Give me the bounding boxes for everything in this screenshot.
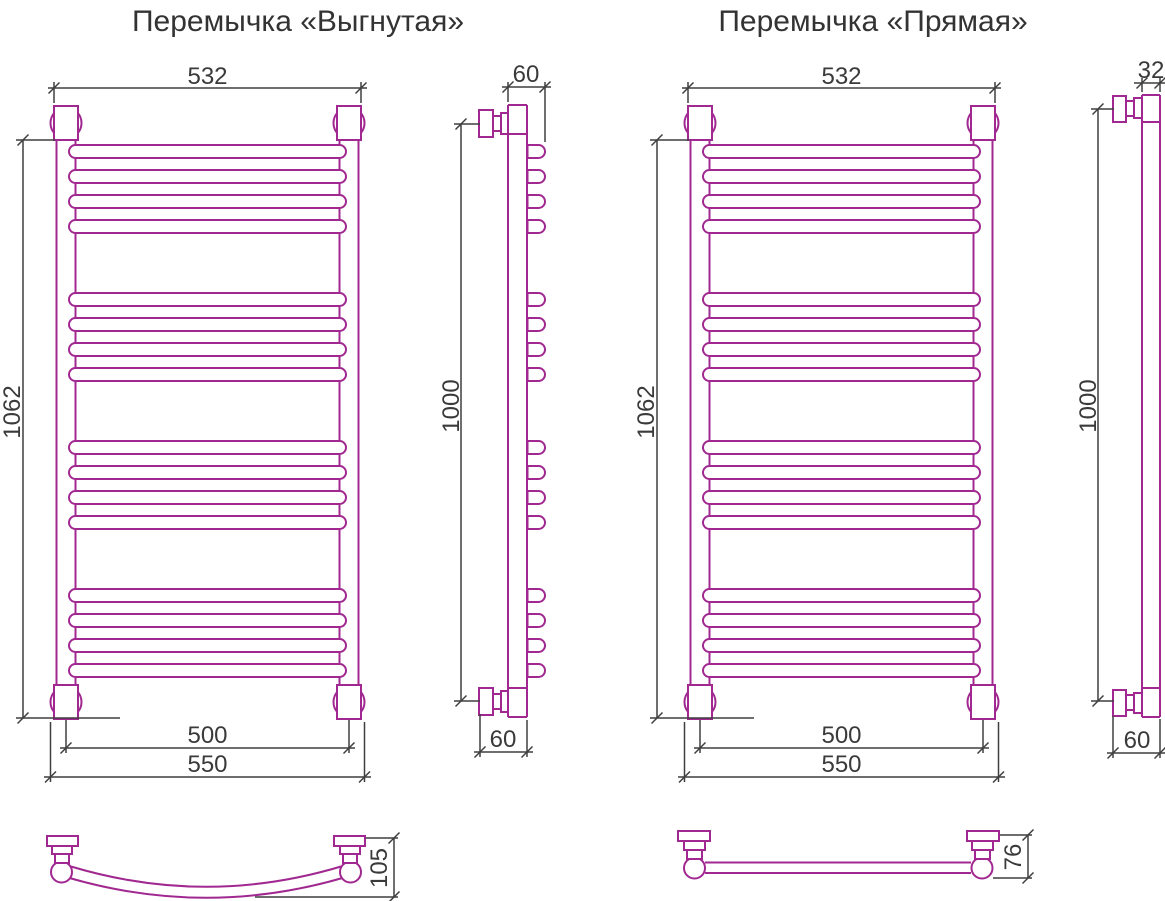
wall-bracket-bottom — [479, 688, 508, 715]
dim-straight-front-height: 1062 — [633, 385, 660, 438]
wall-bracket-right — [967, 831, 999, 859]
dim-straight-front-centers-width: 500 — [821, 722, 861, 749]
dim-curved-detail-bow-depth: 105 — [366, 848, 393, 888]
curved-crossbar-detail-view: 105 — [47, 833, 400, 901]
ball-joint — [972, 858, 993, 879]
dim-curved-front-height: 1062 — [0, 385, 26, 438]
curved-crossbar-drawing: Перемычка «Выгнутая» 532 1062 500 550 — [0, 5, 551, 901]
bowed-tube-top-edge — [71, 867, 341, 887]
curved-title: Перемычка «Выгнутая» — [132, 5, 464, 38]
wall-bracket-bottom — [1113, 690, 1142, 716]
straight-title: Перемычка «Прямая» — [718, 5, 1027, 38]
wall-bracket-left — [678, 831, 710, 859]
dim-straight-front-top-width: 532 — [821, 63, 861, 90]
straight-crossbar-detail-view: 76 — [678, 830, 1034, 884]
dim-curved-front-centers-width: 500 — [187, 722, 227, 749]
straight-crossbar-drawing: Перемычка «Прямая» 532 1062 500 550 — [633, 5, 1165, 884]
curved-front-view: 532 1062 500 550 — [0, 63, 371, 783]
dim-straight-side-top-width: 32 — [1138, 57, 1165, 84]
wall-bracket-left — [47, 836, 78, 863]
dim-straight-detail-depth: 76 — [1000, 844, 1027, 871]
dim-curved-front-overall-width: 550 — [187, 751, 227, 778]
wall-bracket-top — [1113, 96, 1142, 122]
dim-straight-side-bottom-depth: 60 — [1124, 727, 1151, 754]
ball-joint — [340, 862, 361, 883]
bowed-tube-bottom-edge — [70, 878, 343, 898]
dim-straight-side-mount-height: 1000 — [1075, 379, 1102, 432]
wall-bracket-right — [334, 836, 365, 863]
wall-bracket-top — [479, 110, 508, 137]
dim-curved-side-mount-height: 1000 — [438, 379, 465, 432]
dim-curved-side-bottom-depth: 60 — [490, 726, 517, 753]
dim-curved-front-top-width: 532 — [187, 63, 227, 90]
dim-curved-side-top-depth: 60 — [513, 61, 540, 88]
drawing-canvas: Перемычка «Выгнутая» 532 1062 500 550 — [0, 0, 1165, 901]
dim-straight-front-overall-width: 550 — [821, 751, 861, 778]
curved-side-view: 60 1000 60 — [438, 61, 551, 758]
ball-joint — [684, 858, 705, 879]
straight-side-view: 32 1000 60 — [1075, 57, 1165, 759]
ball-joint — [51, 862, 72, 883]
straight-front-view: 532 1062 500 550 — [633, 63, 1005, 783]
